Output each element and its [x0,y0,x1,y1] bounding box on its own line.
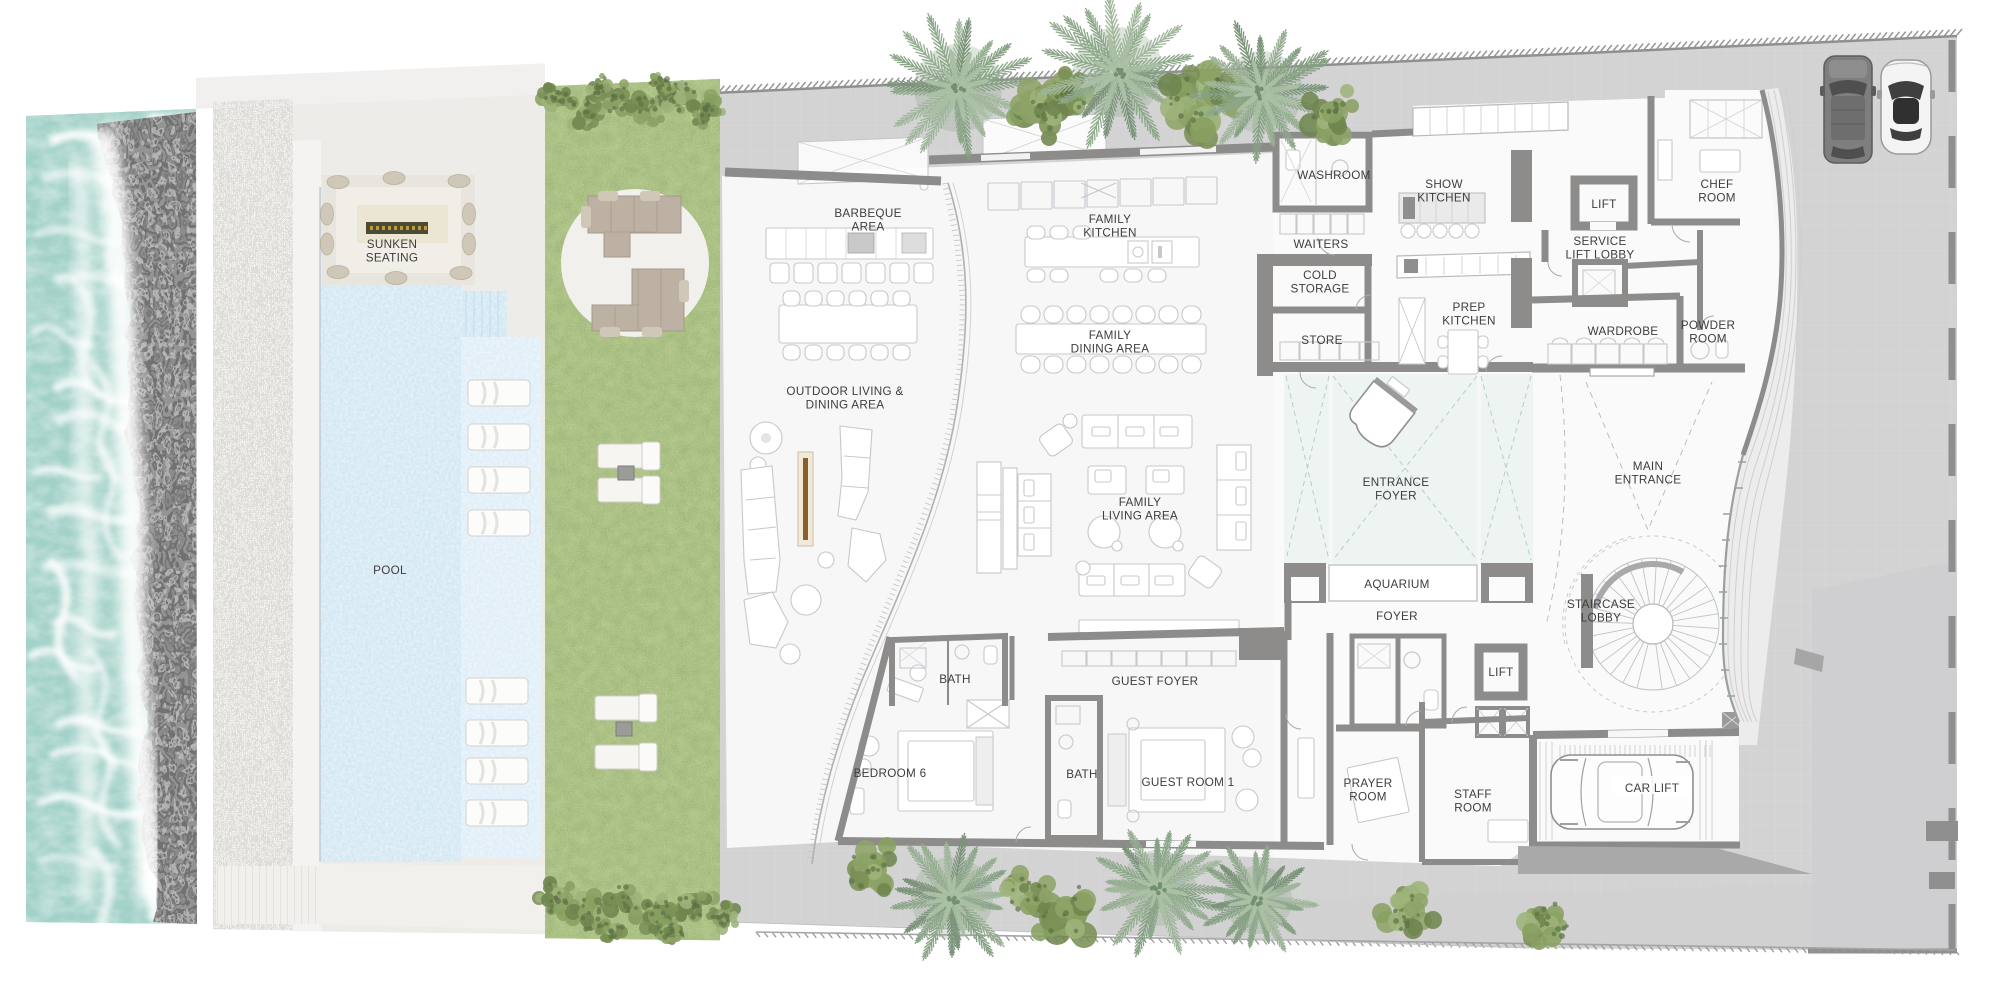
svg-text:PRAYERROOM: PRAYERROOM [1344,777,1393,804]
svg-text:LIFT: LIFT [1591,198,1616,211]
svg-text:SERVICELIFT LOBBY: SERVICELIFT LOBBY [1565,235,1634,262]
svg-text:WAITERS: WAITERS [1294,238,1349,251]
svg-text:BEDROOM 6: BEDROOM 6 [854,767,927,780]
svg-text:WASHROOM: WASHROOM [1297,169,1370,182]
svg-text:FAMILYKITCHEN: FAMILYKITCHEN [1083,213,1136,240]
svg-text:GUEST ROOM 1: GUEST ROOM 1 [1141,776,1234,789]
svg-text:LIFT: LIFT [1488,666,1513,679]
svg-text:POOL: POOL [373,564,407,577]
svg-text:CHEFROOM: CHEFROOM [1698,178,1736,205]
svg-text:SUNKENSEATING: SUNKENSEATING [366,238,419,265]
svg-text:BATH: BATH [1066,768,1098,781]
svg-text:AQUARIUM: AQUARIUM [1364,578,1429,591]
svg-text:WARDROBE: WARDROBE [1588,325,1659,338]
svg-text:SHOWKITCHEN: SHOWKITCHEN [1417,178,1470,205]
svg-text:GUEST FOYER: GUEST FOYER [1112,675,1199,688]
svg-text:STAFFROOM: STAFFROOM [1454,788,1492,815]
svg-text:STORE: STORE [1301,334,1343,347]
svg-text:BATH: BATH [939,673,971,686]
svg-text:FOYER: FOYER [1376,610,1418,623]
svg-text:CAR LIFT: CAR LIFT [1625,782,1679,795]
